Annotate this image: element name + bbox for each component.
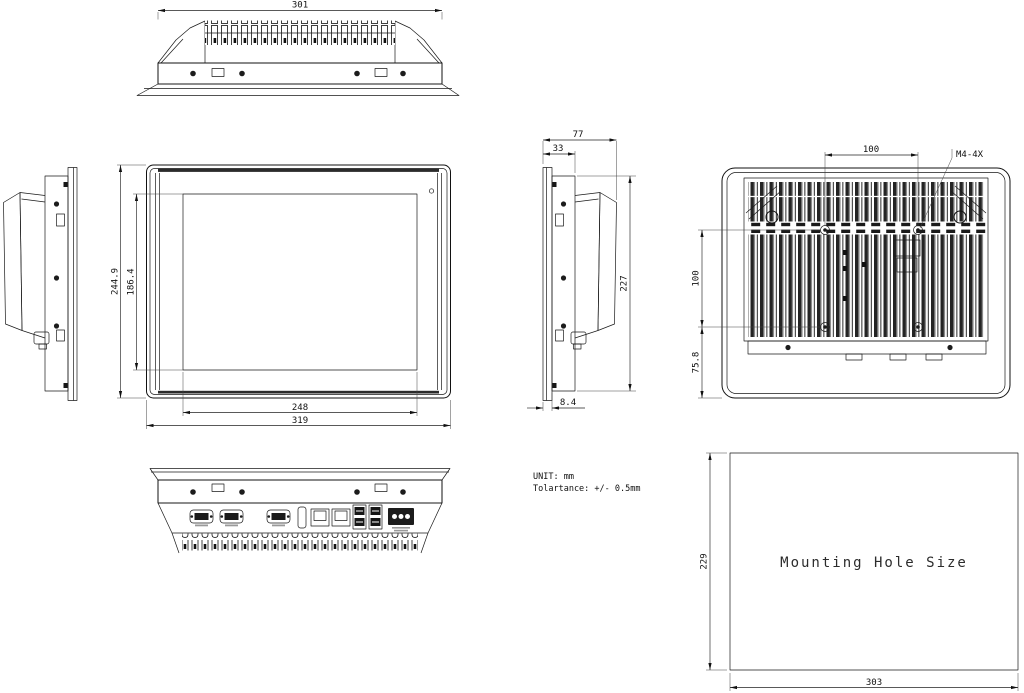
rear-mount-rail: [746, 222, 986, 235]
rear-view: 100 M4-4X 100 75.8: [692, 145, 1011, 398]
bottom-latch-slot: [212, 484, 224, 492]
bottom-screw: [400, 489, 406, 495]
dim-label-248: 248: [292, 403, 308, 413]
dim-mounting-height: 229: [700, 453, 728, 670]
bottom-screw: [239, 489, 245, 495]
bottom-screw: [354, 489, 360, 495]
usb-port-stack: [369, 505, 382, 529]
top-heatsink: [158, 21, 442, 64]
display-active-area: [183, 194, 417, 370]
side-latch-slot: [556, 214, 564, 226]
dimensional-drawing-sheet: 301: [0, 0, 1024, 693]
serial-port-db9: [190, 510, 213, 526]
mounting-caption: Mounting Hole Size: [780, 555, 968, 571]
dim-label-319: 319: [292, 416, 308, 426]
top-screw: [400, 71, 406, 77]
front-view: 244.9 186.4 248 319: [111, 165, 451, 429]
side-screw: [561, 323, 566, 328]
bottom-front-bezel-flange: [150, 469, 450, 481]
top-latch-slot: [212, 69, 224, 77]
left-side-view: [4, 168, 78, 401]
side-screw: [561, 275, 566, 280]
rear-screw: [947, 345, 952, 350]
dim-label-227: 227: [620, 275, 630, 291]
dim-label-vesa-100-h: 100: [863, 145, 879, 155]
rear-bottom-bar: [748, 341, 986, 360]
top-chassis-bar: [158, 63, 442, 84]
serial-port-db9: [267, 510, 290, 526]
top-view: 301: [137, 1, 459, 96]
front-bezel-top-edge: [158, 169, 439, 172]
side-foot: [571, 332, 586, 344]
dim-label-8-4: 8.4: [560, 398, 576, 408]
dim-label-33: 33: [553, 144, 564, 154]
bottom-screw: [190, 489, 196, 495]
dc-power-terminal: [388, 508, 414, 531]
front-bezel-bottom-edge: [158, 391, 439, 394]
top-latch-slot: [375, 69, 387, 77]
dim-side-overall-depth: 77: [543, 130, 617, 200]
bottom-latch-slot: [375, 484, 387, 492]
dim-label-244-9: 244.9: [111, 268, 121, 295]
note-tolerance: Tolartance: +/- 0.5mm: [533, 484, 640, 494]
dim-front-display-height: 186.4: [127, 194, 184, 370]
lan-port-rj45: [311, 509, 329, 526]
dim-label-186-4: 186.4: [127, 268, 137, 295]
dim-label-75-8: 75.8: [692, 352, 702, 374]
dim-label-301: 301: [292, 1, 308, 11]
right-side-view-body: [543, 168, 617, 401]
power-led: [429, 189, 433, 193]
drawing-notes: UNIT: mm Tolartance: +/- 0.5mm: [533, 472, 640, 494]
dim-rear-lower-offset: 75.8: [692, 327, 723, 398]
dim-mounting-width: 303: [730, 673, 1018, 691]
dim-side-bezel-protrusion: 8.4: [527, 393, 585, 411]
rear-screw: [785, 345, 790, 350]
bottom-heatsink-fins: [172, 533, 428, 553]
top-screw: [239, 71, 245, 77]
mounting-hole-diagram: Mounting Hole Size 229 303: [700, 453, 1019, 691]
rear-heatsink-fins: [748, 182, 984, 337]
dim-label-303: 303: [866, 678, 882, 688]
side-latch-slot: [556, 330, 564, 341]
label-m4-4x: M4-4X: [956, 150, 984, 160]
top-screw: [354, 71, 360, 77]
note-unit: UNIT: mm: [533, 472, 574, 482]
bottom-view: [150, 469, 450, 554]
top-front-bezel-flange: [137, 84, 459, 96]
side-screw: [561, 201, 566, 206]
dim-top-overall-width: 301: [158, 1, 442, 20]
hdmi-port: [298, 507, 306, 528]
top-screw: [190, 71, 196, 77]
dim-label-vesa-100-v: 100: [692, 270, 702, 286]
usb-port-stack: [353, 505, 366, 529]
serial-port-db9: [220, 510, 243, 526]
io-ports: [190, 505, 414, 531]
dim-side-chassis-height: 227: [577, 176, 636, 391]
dim-label-77: 77: [573, 130, 584, 140]
lan-port-rj45: [332, 509, 350, 526]
side-heatsink-profile: [575, 193, 617, 339]
dim-label-229: 229: [700, 553, 710, 569]
dim-side-chassis-depth: 33: [543, 144, 575, 173]
bottom-chassis-bar: [158, 480, 442, 503]
dim-front-display-width: 248: [183, 372, 417, 416]
